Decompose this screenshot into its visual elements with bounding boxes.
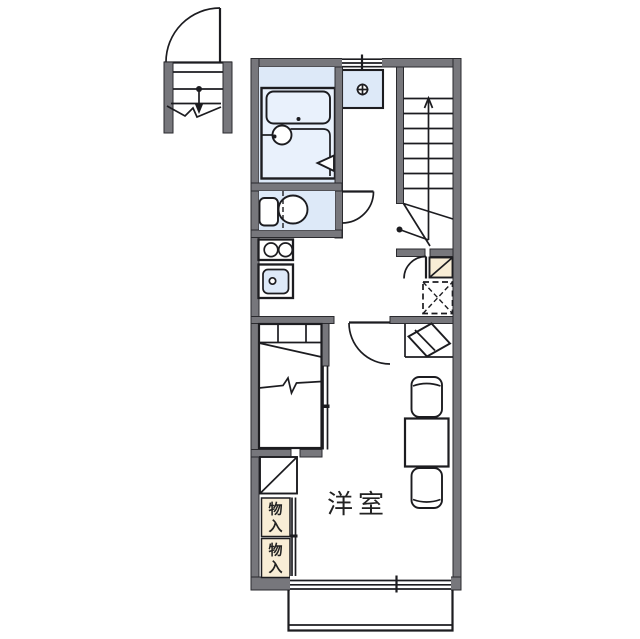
toilet-room (259, 191, 335, 230)
faucet-dot (269, 278, 275, 284)
bedroom-door (349, 323, 390, 365)
wall-bed-foot (251, 450, 291, 458)
porch-stairs (167, 72, 223, 117)
porch-wall-left (164, 62, 173, 133)
wall-toilet-bottom (251, 230, 342, 238)
toilet-tank (260, 198, 279, 226)
entrance-porch (164, 8, 232, 133)
wall-bath-bottom (251, 183, 342, 191)
balcony (289, 590, 453, 631)
top-window (342, 55, 382, 71)
tv-corner (405, 324, 453, 358)
drain-dot (297, 117, 301, 121)
break-line (167, 106, 221, 117)
washing-machine-space (342, 70, 383, 108)
closet-2: 物 入 (262, 539, 291, 578)
closet-1-label-char2: 入 (269, 518, 283, 534)
chair-top (412, 377, 443, 417)
wall-bedroom-right (390, 317, 453, 324)
entry-door (404, 257, 426, 279)
wall-stairs-left (397, 67, 404, 204)
wall-entry-left (397, 249, 426, 257)
bathroom (259, 67, 335, 183)
shoe-cabinet (430, 258, 453, 278)
shelf-box (260, 457, 297, 494)
dining-table (405, 419, 449, 467)
burner-icon (264, 243, 278, 257)
staircase (397, 67, 454, 246)
chair-bottom (412, 468, 443, 508)
wall-right (453, 59, 461, 591)
kitchen-sink (259, 265, 294, 299)
washroom-door (342, 192, 374, 224)
floorplan-page: 物 入 物 入 洋室 (0, 0, 640, 639)
closet-2-label-char2: 入 (269, 559, 283, 575)
burner-icon (279, 243, 293, 257)
kitchen-stove (259, 240, 294, 261)
porch-door-arc (166, 8, 220, 62)
refrigerator-space (423, 282, 453, 314)
wall-entry-right (430, 249, 453, 257)
partition-handle (322, 405, 330, 409)
room-label: 洋室 (327, 489, 389, 519)
closet-1: 物 入 (262, 498, 291, 537)
floorplan-drawing: 物 入 物 入 洋室 (0, 0, 640, 639)
bed (259, 324, 322, 448)
wall-left (251, 59, 259, 591)
closet-front-track (290, 498, 298, 578)
bottom-window (290, 576, 451, 593)
closet-2-label-char1: 物 (269, 542, 283, 558)
tv-icon (409, 324, 451, 357)
closet-1-label-char1: 物 (269, 501, 283, 517)
bathtub (267, 92, 331, 124)
wall-bedroom-left (251, 317, 334, 324)
wall-bath-right (335, 67, 343, 238)
porch-wall-right (223, 62, 232, 133)
bed-partition (322, 324, 330, 450)
wall-bed-foot (300, 450, 322, 458)
